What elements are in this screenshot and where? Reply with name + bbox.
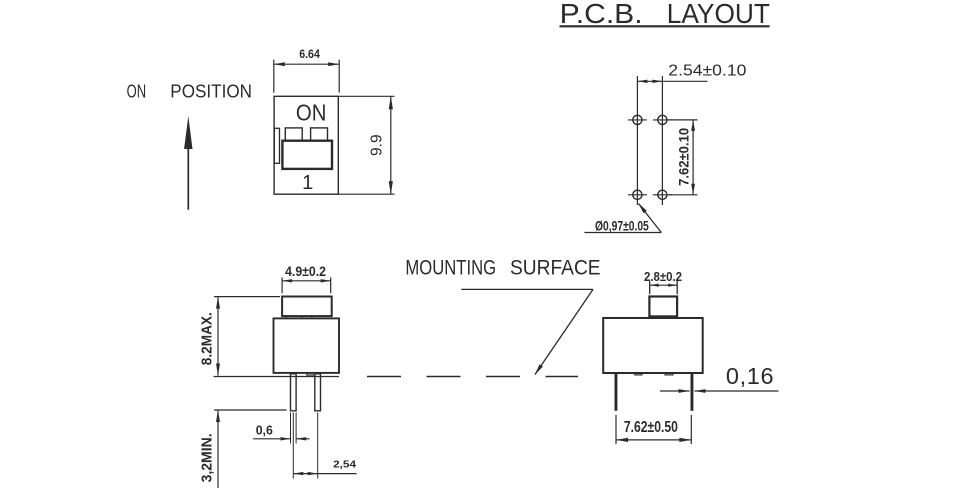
svg-text:8.2MAX.: 8.2MAX. bbox=[199, 312, 216, 365]
svg-text:Ø0,97±0.05: Ø0,97±0.05 bbox=[595, 219, 649, 234]
svg-text:LAYOUT: LAYOUT bbox=[667, 0, 770, 29]
svg-text:ON: ON bbox=[296, 99, 327, 125]
svg-text:1: 1 bbox=[302, 172, 313, 194]
svg-text:2.54±0.10: 2.54±0.10 bbox=[668, 62, 746, 79]
svg-text:9.9: 9.9 bbox=[368, 134, 385, 156]
svg-text:6.64: 6.64 bbox=[299, 49, 320, 61]
svg-text:7.62±0.10: 7.62±0.10 bbox=[675, 128, 691, 186]
svg-text:ON: ON bbox=[127, 82, 147, 102]
svg-text:P.C.B.: P.C.B. bbox=[560, 0, 643, 29]
svg-text:0,16: 0,16 bbox=[726, 363, 774, 389]
svg-text:POSITION: POSITION bbox=[170, 82, 252, 102]
svg-text:SURFACE: SURFACE bbox=[510, 257, 601, 280]
svg-text:0,6: 0,6 bbox=[256, 424, 273, 438]
svg-text:3,2MIN.: 3,2MIN. bbox=[199, 433, 216, 482]
svg-text:2,54: 2,54 bbox=[333, 459, 356, 471]
svg-text:4.9±0.2: 4.9±0.2 bbox=[285, 264, 326, 279]
svg-text:MOUNTING: MOUNTING bbox=[405, 257, 496, 280]
svg-text:2.8±0.2: 2.8±0.2 bbox=[644, 269, 682, 284]
svg-text:7.62±0.50: 7.62±0.50 bbox=[624, 419, 678, 436]
